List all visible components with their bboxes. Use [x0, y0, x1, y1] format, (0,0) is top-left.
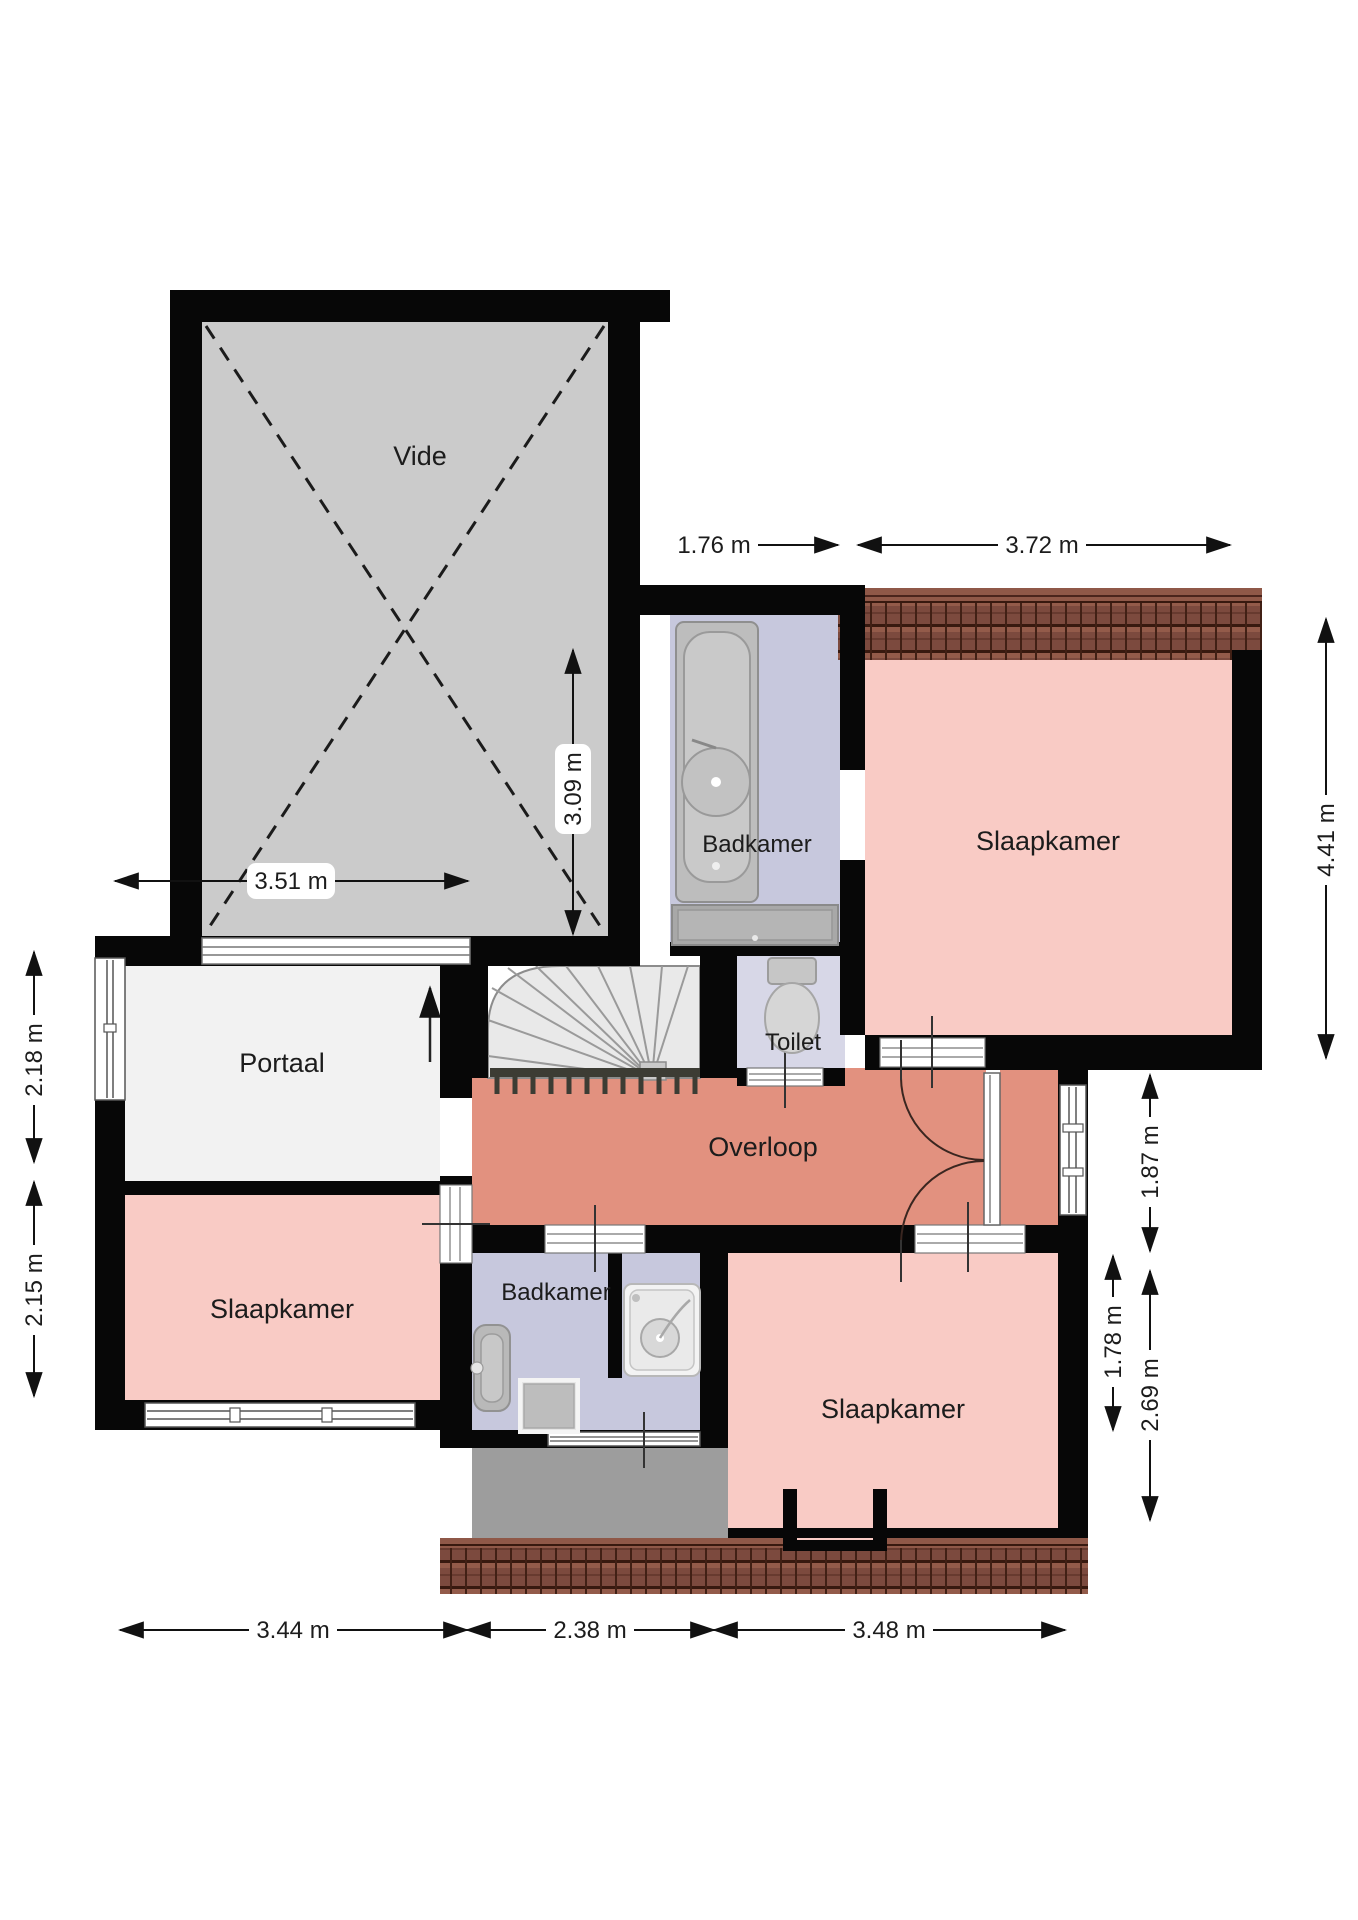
- dormer-bay: [783, 1489, 887, 1551]
- window-portaal: [95, 958, 125, 1100]
- window-slaapkamer-left: [145, 1403, 415, 1427]
- floor-plan: Vide Badkamer Slaapkamer Toilet Portaal …: [0, 0, 1358, 1920]
- dim-overloop-ext-height: 1.87 m: [1137, 1125, 1164, 1198]
- roof-tiles-bottom: [440, 1538, 1088, 1594]
- room-slaapkamer-bottomright: [728, 1253, 1058, 1528]
- label-toilet: Toilet: [765, 1029, 821, 1056]
- dim-badkamer-top-width: 1.76 m: [677, 532, 750, 559]
- roof-tiles-top: [838, 588, 1262, 660]
- room-vide: [202, 322, 608, 936]
- slope-gray-strip: [472, 1448, 728, 1540]
- dim-slaapkamer-topright-height: 4.41 m: [1313, 803, 1340, 876]
- vide-open-border: [202, 938, 470, 964]
- dim-vide-height: 3.09 m: [560, 752, 587, 825]
- label-slaapkamer-left: Slaapkamer: [210, 1294, 354, 1324]
- label-portaal: Portaal: [239, 1048, 325, 1078]
- window-overloop-extension: [1060, 1085, 1086, 1215]
- dim-bottom-middle-width: 2.38 m: [553, 1617, 626, 1644]
- dim-bottom-right-width: 3.48 m: [852, 1617, 925, 1644]
- label-overloop: Overloop: [708, 1132, 818, 1162]
- floor-plan-page: Vide Badkamer Slaapkamer Toilet Portaal …: [0, 0, 1358, 1920]
- dim-portaal-width: 3.51 m: [254, 868, 327, 895]
- dim-slaapkamer-topright-width: 3.72 m: [1005, 532, 1078, 559]
- label-vide: Vide: [393, 441, 447, 471]
- label-slaapkamer-bottomright: Slaapkamer: [821, 1394, 965, 1424]
- dim-slaapkamer-bottom-inner-height: 1.78 m: [1100, 1305, 1127, 1378]
- dim-slaapkamer-left-height: 2.15 m: [21, 1253, 48, 1326]
- opening-portaal: [440, 1098, 472, 1176]
- opening-badkamer-top: [840, 770, 865, 860]
- dim-slaapkamer-bottom-outer-height: 2.69 m: [1137, 1358, 1164, 1431]
- dim-portaal-height: 2.18 m: [21, 1023, 48, 1096]
- shower-tray: [520, 1380, 578, 1432]
- label-slaapkamer-topright: Slaapkamer: [976, 826, 1120, 856]
- wall-sink: [471, 1325, 510, 1411]
- bathtub: [676, 622, 758, 902]
- shower-cabin: [624, 1284, 700, 1376]
- dim-bottom-left-width: 3.44 m: [256, 1617, 329, 1644]
- label-badkamer-bottom: Badkamer: [501, 1279, 610, 1306]
- label-badkamer-top: Badkamer: [702, 831, 811, 858]
- vanity-counter: [672, 905, 838, 945]
